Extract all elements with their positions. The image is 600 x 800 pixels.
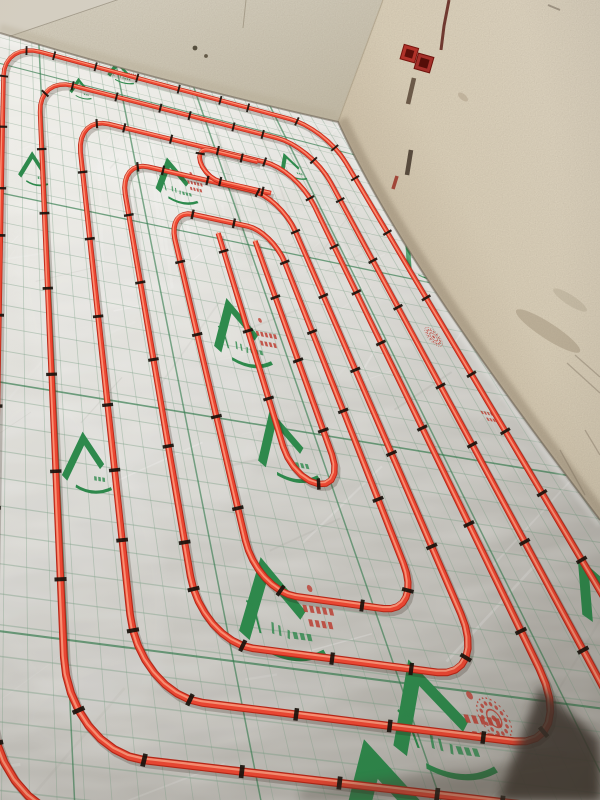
vignette [0,0,600,800]
construction-photo: Underfloor heating pipe loops on foil in… [0,0,600,800]
scene-svg [0,0,600,800]
